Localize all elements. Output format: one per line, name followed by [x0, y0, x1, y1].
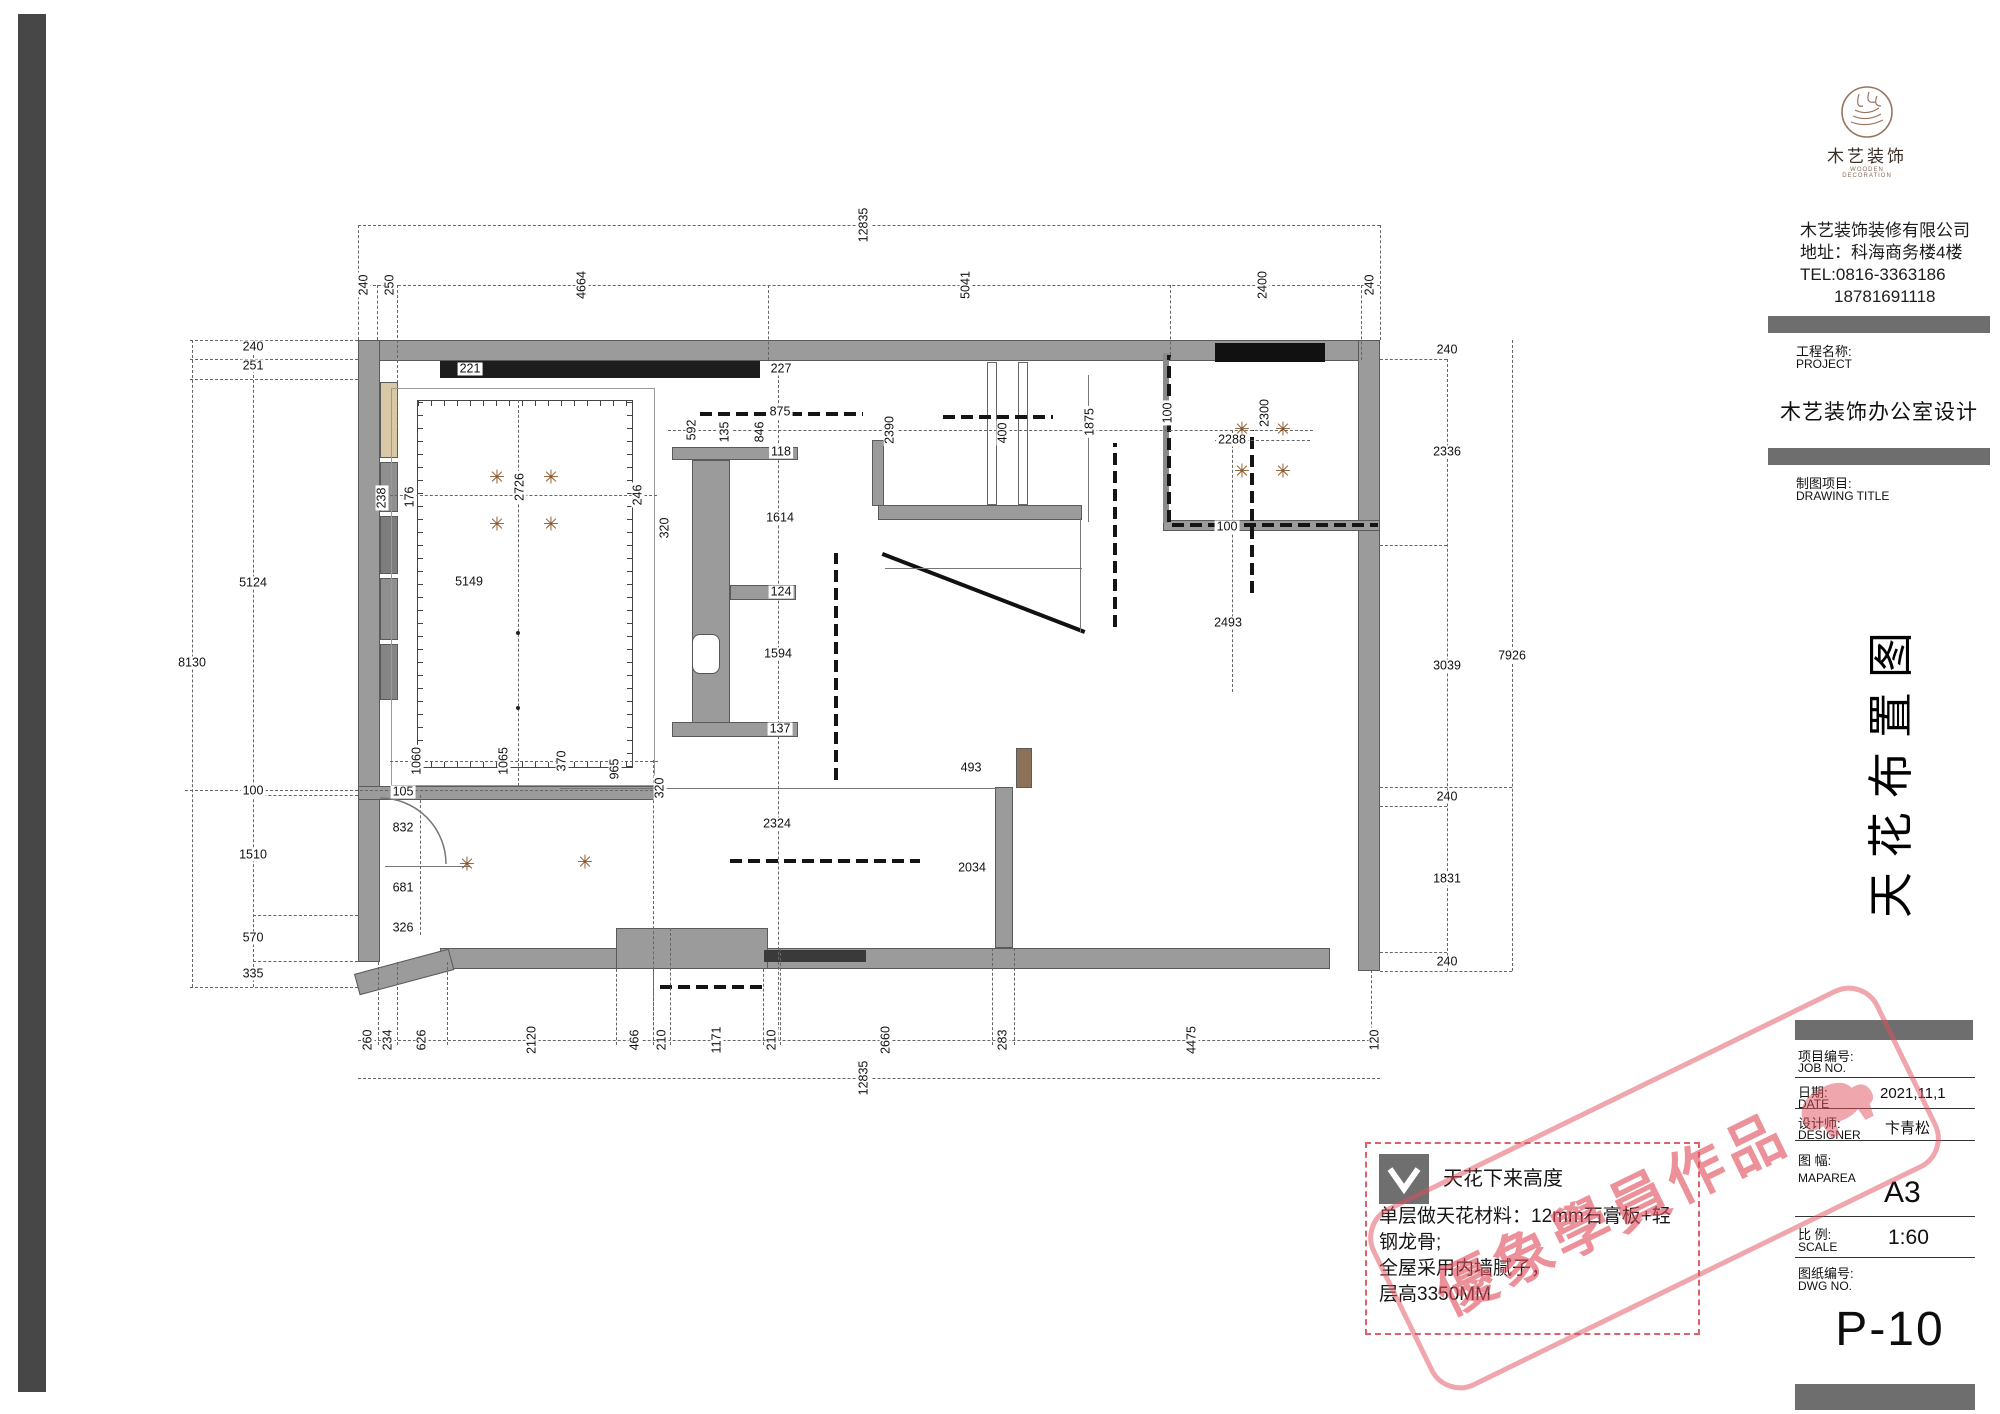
ceiling-drop-icon — [1379, 1154, 1429, 1204]
dim-label: 100 — [241, 785, 266, 798]
dim-label: 965 — [609, 757, 622, 782]
dim-label: 2660 — [880, 1024, 893, 1056]
drawing-title-vertical: 天花布置图 — [1738, 610, 2000, 910]
dim-label: 100 — [1162, 401, 1175, 426]
row-divider — [1795, 1108, 1975, 1109]
dim-label: 2493 — [1212, 617, 1244, 630]
scale-label-en: SCALE — [1798, 1240, 1837, 1254]
dim-label: 238 — [376, 486, 389, 511]
dim-label: 400 — [997, 421, 1010, 446]
dim-label: 1831 — [1431, 873, 1463, 886]
dim-label: 326 — [391, 922, 416, 935]
project-name: 木艺装饰办公室设计 — [1780, 396, 1995, 426]
dim-label: 105 — [391, 786, 416, 799]
maparea-label-cn: 图 幅: — [1798, 1150, 1831, 1169]
dim-label: 4475 — [1186, 1024, 1199, 1056]
dim-label: 124 — [769, 586, 794, 599]
dim-label: 240 — [241, 341, 266, 354]
dim-label: 2400 — [1257, 269, 1270, 301]
dim-label: 832 — [391, 822, 416, 835]
dim-label: 2120 — [526, 1024, 539, 1056]
divider-bar — [1795, 1020, 1973, 1040]
dim-label: 466 — [629, 1028, 642, 1053]
dim-label: 221 — [458, 363, 483, 376]
row-divider — [1795, 1140, 1975, 1141]
row-divider — [1795, 1077, 1975, 1078]
dim-label: 250 — [384, 273, 397, 298]
dim-label: 8130 — [176, 657, 208, 670]
company-name: 木艺装饰装修有限公司 — [1800, 220, 2000, 242]
company-tel: TEL:0816-3363186 — [1800, 264, 2000, 286]
company-info: 木艺装饰装修有限公司 地址：科海商务楼4楼 TEL:0816-3363186 1… — [1800, 220, 2000, 308]
dim-label: 240 — [1435, 344, 1460, 357]
dim-label: 100 — [1215, 521, 1240, 534]
designer-value: 卞青松 — [1885, 1117, 1930, 1138]
scale-value: 1:60 — [1888, 1226, 1929, 1250]
dim-label: 5149 — [453, 576, 485, 589]
dim-label: 210 — [766, 1028, 779, 1053]
dim-label: 1594 — [762, 648, 794, 661]
dim-label: 370 — [556, 749, 569, 774]
dim-label: 240 — [1435, 956, 1460, 969]
dim-label: 2336 — [1431, 446, 1463, 459]
dim-label: 2034 — [956, 862, 988, 875]
dim-label: 2324 — [761, 818, 793, 831]
dim-label: 335 — [241, 968, 266, 981]
dim-label: 1065 — [498, 745, 511, 777]
logo-name-cn: 木艺装饰 — [1825, 142, 1909, 167]
dim-label: 260 — [362, 1028, 375, 1053]
logo-name-en: WOODEN DECORATION — [1825, 167, 1909, 179]
dim-label: 2300 — [1259, 397, 1272, 429]
dim-label: 5124 — [237, 577, 269, 590]
maparea-value: A3 — [1884, 1176, 1921, 1210]
dim-label: 1510 — [237, 849, 269, 862]
company-logo: 木艺装饰 WOODEN DECORATION — [1825, 84, 1909, 179]
company-address: 地址：科海商务楼4楼 — [1800, 242, 2000, 264]
dim-label: 1614 — [764, 512, 796, 525]
dim-label: 1060 — [411, 745, 424, 777]
dim-label: 1171 — [711, 1025, 724, 1056]
divider-bar — [1795, 1384, 1975, 1410]
legend-item-label: 天花下来高度 — [1443, 1166, 1563, 1192]
dim-label: 12835 — [858, 1059, 871, 1098]
dim-label: 240 — [1435, 791, 1460, 804]
dim-label: 234 — [382, 1028, 395, 1053]
row-divider — [1795, 1216, 1975, 1217]
sheet-number: P-10 — [1800, 1302, 1980, 1357]
company-tel2: 18781691118 — [1800, 286, 2000, 308]
divider-bar — [1768, 448, 1990, 465]
legend-note-1: 单层做天花材料：12mm石膏板+轻钢龙骨; — [1379, 1204, 1686, 1256]
dimension-layer: 1283524025046645041240024081302402515124… — [0, 0, 2000, 1414]
dim-label: 681 — [391, 882, 416, 895]
dim-label: 227 — [769, 363, 794, 376]
date-value: 2021,11,1 — [1880, 1085, 1946, 1102]
dim-label: 846 — [754, 420, 767, 445]
dim-label: 875 — [768, 406, 793, 419]
dim-label: 176 — [404, 485, 417, 510]
dim-label: 210 — [656, 1028, 669, 1053]
legend-note-3: 层高3350MM — [1379, 1282, 1686, 1308]
dim-label: 137 — [768, 723, 793, 736]
logo-mark-icon — [1839, 84, 1895, 140]
dim-label: 1875 — [1084, 406, 1097, 438]
dim-label: 118 — [769, 446, 793, 459]
dim-label: 2390 — [884, 414, 897, 446]
dim-label: 12835 — [858, 206, 871, 245]
row-divider — [1795, 1257, 1975, 1258]
legend-box: 天花下来高度 单层做天花材料：12mm石膏板+轻钢龙骨; 全屋采用内墙腻子， 层… — [1365, 1142, 1700, 1335]
drawing-label-en: DRAWING TITLE — [1796, 489, 1889, 503]
dim-label: 570 — [241, 932, 266, 945]
dim-label: 7926 — [1496, 650, 1528, 663]
dim-label: 592 — [686, 418, 699, 443]
dwg-no-label-en: DWG NO. — [1798, 1279, 1852, 1293]
dim-label: 320 — [659, 516, 672, 541]
drawing-sheet: ✳✳✳✳✳✳✳✳✳✳ 12835240250466450412400240813… — [0, 0, 2000, 1414]
project-label-en: PROJECT — [1796, 357, 1852, 371]
dim-label: 2288 — [1216, 434, 1248, 447]
legend-note-2: 全屋采用内墙腻子， — [1379, 1256, 1686, 1282]
divider-bar — [1768, 316, 1990, 333]
dim-label: 240 — [358, 273, 371, 298]
dim-label: 4664 — [576, 269, 589, 301]
dim-label: 320 — [654, 776, 667, 801]
dim-label: 2726 — [514, 471, 527, 503]
job-no-label-en: JOB NO. — [1798, 1061, 1846, 1075]
dim-label: 246 — [632, 483, 645, 508]
dim-label: 135 — [719, 420, 732, 445]
dim-label: 240 — [1364, 273, 1377, 298]
dim-label: 283 — [997, 1028, 1010, 1053]
dim-label: 251 — [241, 360, 266, 373]
dim-label: 626 — [416, 1028, 429, 1053]
dim-label: 120 — [1369, 1028, 1382, 1053]
dim-label: 3039 — [1431, 660, 1463, 673]
dim-label: 493 — [959, 762, 984, 775]
dim-label: 5041 — [960, 269, 973, 301]
maparea-label-en: MAPAREA — [1798, 1171, 1856, 1185]
